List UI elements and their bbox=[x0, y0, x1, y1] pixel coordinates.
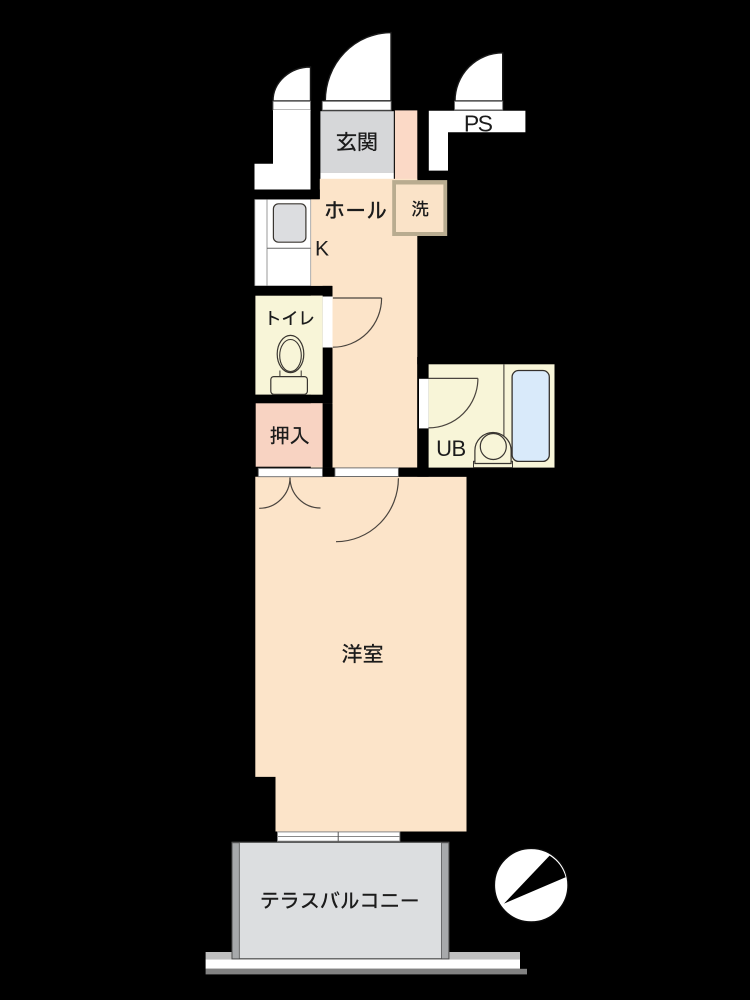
svg-text:UB: UB bbox=[436, 436, 466, 461]
svg-text:PS: PS bbox=[464, 111, 493, 137]
svg-text:K: K bbox=[315, 237, 329, 260]
